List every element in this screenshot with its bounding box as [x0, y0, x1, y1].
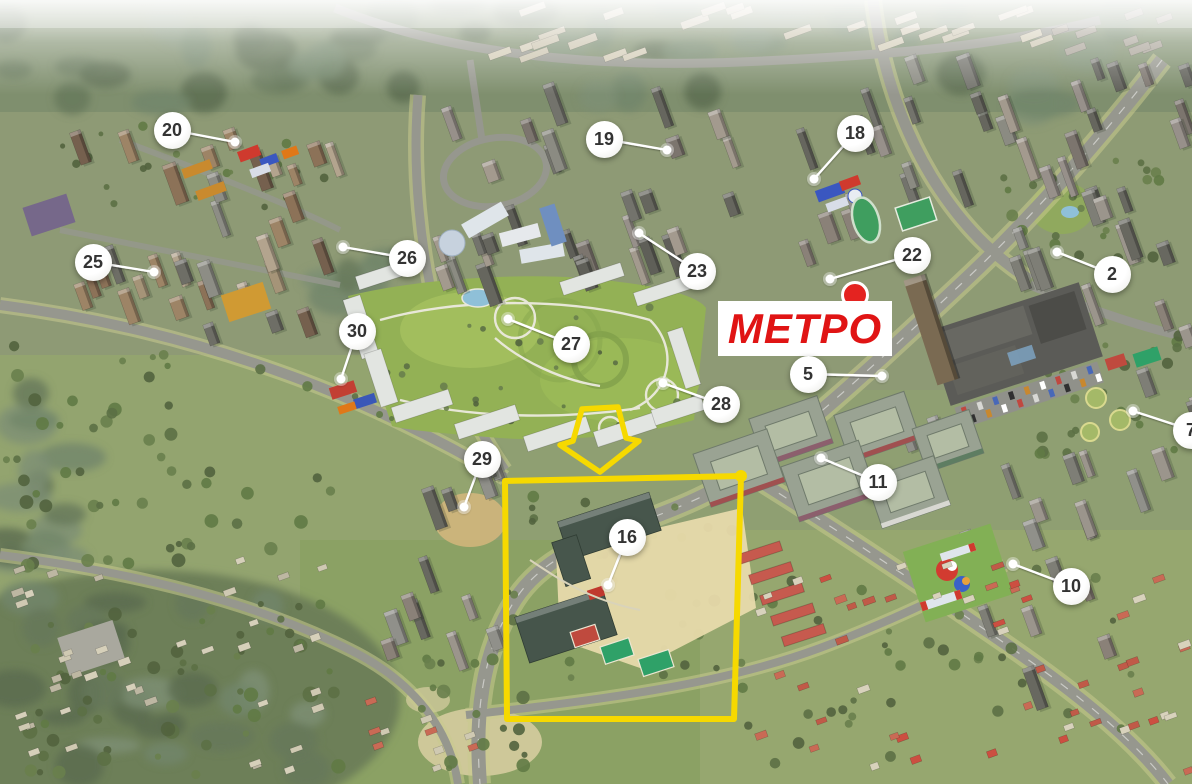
map-marker-30[interactable]: 30	[339, 313, 376, 350]
map-marker-25[interactable]: 25	[75, 244, 112, 281]
map-marker-18[interactable]: 18	[837, 115, 874, 152]
map-marker-27[interactable]: 27	[553, 326, 590, 363]
highlight-rectangle-corner	[735, 470, 747, 482]
map-marker-10[interactable]: 10	[1053, 568, 1090, 605]
map-marker-19[interactable]: 19	[586, 121, 623, 158]
map-marker-5[interactable]: 5	[790, 356, 827, 393]
masterplan-map: 2019182526232223027528112916107 МЕТРО	[0, 0, 1192, 784]
map-marker-22[interactable]: 22	[894, 237, 931, 274]
top-haze	[0, 0, 1192, 95]
metro-store-label: МЕТРО	[718, 301, 892, 356]
map-marker-16[interactable]: 16	[609, 519, 646, 556]
map-marker-11[interactable]: 11	[860, 464, 897, 501]
map-marker-23[interactable]: 23	[679, 253, 716, 290]
map-marker-28[interactable]: 28	[703, 386, 740, 423]
map-marker-20[interactable]: 20	[154, 112, 191, 149]
map-marker-2[interactable]: 2	[1094, 256, 1131, 293]
map-marker-29[interactable]: 29	[464, 441, 501, 478]
map-marker-26[interactable]: 26	[389, 240, 426, 277]
